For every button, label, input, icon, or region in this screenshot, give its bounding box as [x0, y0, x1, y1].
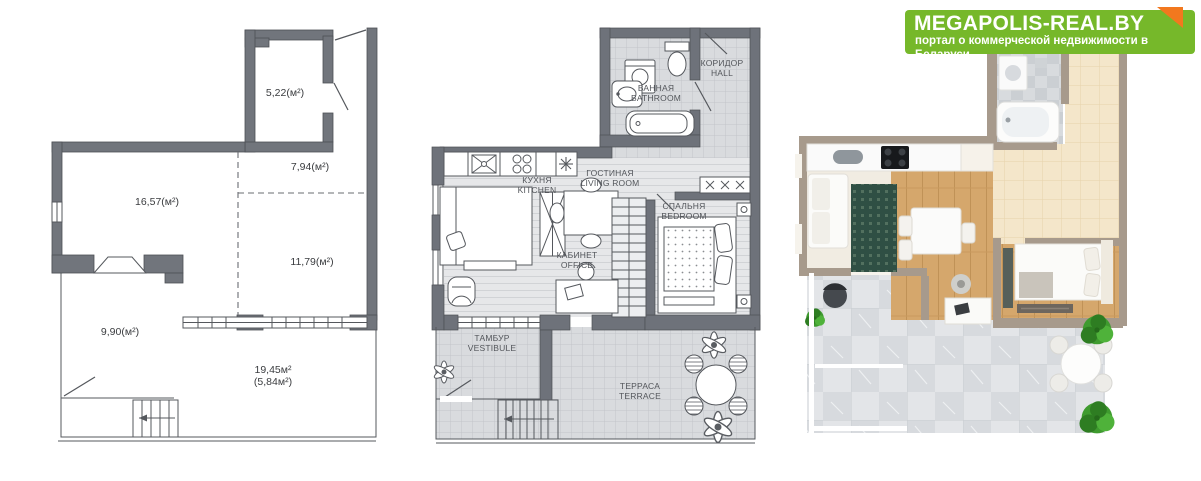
room-label-terrace: ТЕРРАСА TERRACE [619, 381, 661, 401]
megapolis-logo: MEGAPOLIS-REAL.BY портал о коммерческой … [905, 10, 1195, 54]
terrace-sub: (5,84м²) [254, 376, 292, 388]
sink-3d [833, 150, 863, 164]
kitchen-counter [444, 152, 577, 176]
bed [658, 217, 736, 313]
area-label-terrace: 19,45м² (5,84м²) [254, 364, 292, 388]
room-label-hall: КОРИДОР HALL [701, 58, 744, 78]
door-swings [64, 30, 366, 396]
nightstand [737, 203, 751, 216]
area-label-room2: 7,94(м²) [291, 161, 329, 173]
screen-divider [540, 192, 565, 256]
railing [815, 364, 903, 368]
windows-and-outline [52, 202, 376, 441]
railing [809, 426, 907, 431]
room-label-office: КАБИНЕТ OFFICE [557, 250, 598, 270]
room-label-living: ГОСТИНАЯ LIVING ROOM [581, 168, 640, 188]
logo-title: MEGAPOLIS-REAL.BY [905, 10, 1195, 35]
area-label-room4: 11,79(м²) [290, 256, 333, 268]
zoning-dashed-lines [238, 152, 367, 315]
sofa-bed [440, 187, 532, 270]
room-label-kitchen: КУХНЯ KITCHEN [518, 175, 557, 195]
area-label-room5: 9,90(м²) [101, 326, 139, 338]
room-label-vestibule: ТАМБУР VESTIBULE [468, 333, 517, 353]
schematic-plan-drawing [40, 25, 410, 465]
render-3d-drawing [795, 28, 1130, 478]
bathtub [626, 111, 694, 136]
nightstand [737, 295, 751, 308]
logo-subtitle: портал о коммерческой недвижимости в Бел… [905, 35, 1195, 63]
room-label-bedroom: СПАЛЬНЯ BEDROOM [661, 201, 706, 221]
floor-plan-listing-image: 5,22(м²) 7,94(м²) 16,57(м²) 11,79(м²) 9,… [0, 0, 1201, 481]
floor-plan-schematic: 5,22(м²) 7,94(м²) 16,57(м²) 11,79(м²) 9,… [40, 25, 410, 465]
detailed-plan-drawing [428, 25, 763, 465]
floor-plan-detailed: КОРИДОР HALL ВАННАЯ BATHROOM КУХНЯ KITCH… [428, 25, 763, 465]
rug-3d [851, 184, 897, 272]
headboard [1101, 240, 1113, 304]
terrace-total: 19,45м² [254, 364, 292, 376]
railing [809, 273, 814, 433]
runner-rug [1003, 248, 1013, 308]
kitchen-fixtures [444, 152, 577, 176]
room-label-bathroom: ВАННАЯ BATHROOM [631, 83, 681, 103]
vent-asterisk [559, 157, 573, 171]
dining-table-3d [911, 208, 961, 254]
area-label-room3: 16,57(м²) [135, 196, 179, 208]
area-label-room1: 5,22(м²) [266, 87, 304, 99]
walls [52, 28, 377, 330]
cooktop [881, 146, 909, 169]
kitchen-sink [472, 155, 496, 173]
wardrobe [700, 177, 750, 193]
kitchen-3d [807, 144, 993, 171]
armchair [448, 277, 475, 306]
floor-plan-3d-render [795, 28, 1130, 478]
staircase [133, 400, 178, 437]
